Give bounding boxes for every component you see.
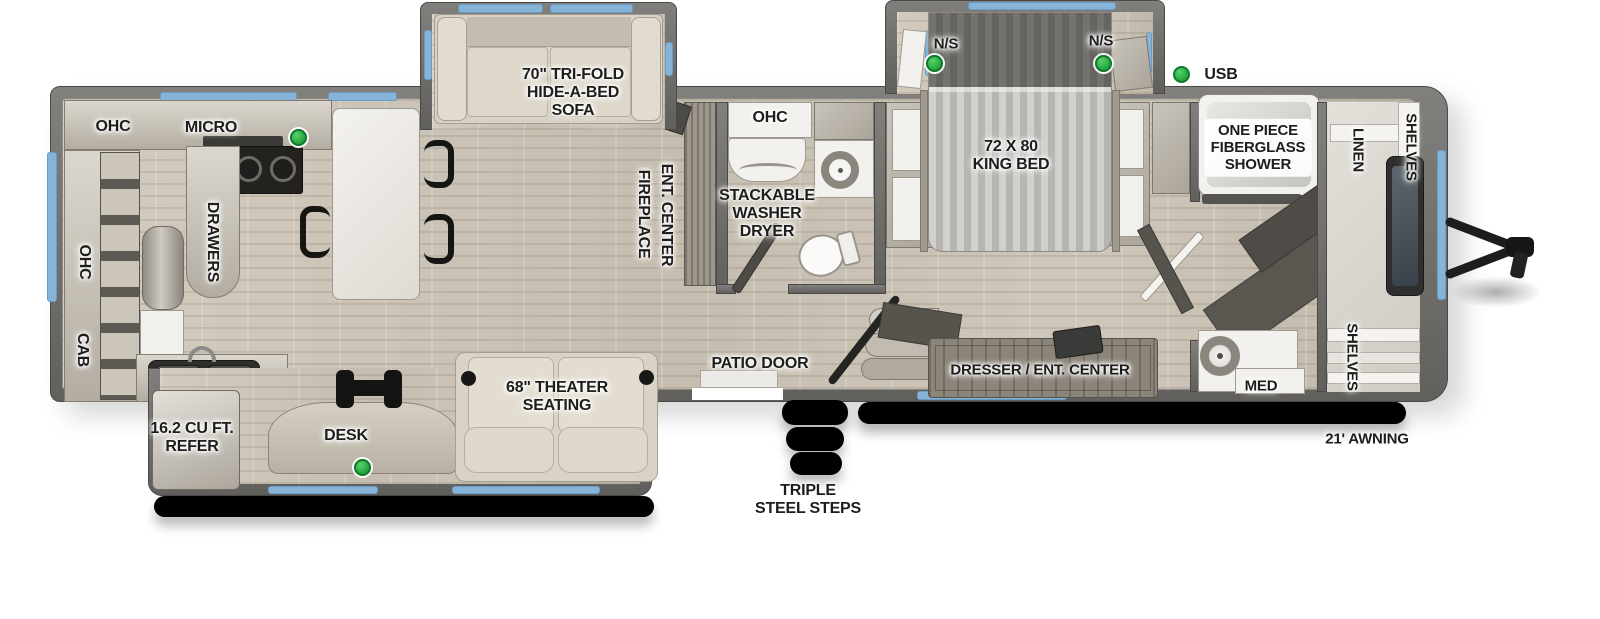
cupholder-icon bbox=[639, 370, 654, 385]
kitchen-cabinet-box bbox=[140, 310, 184, 360]
drain-icon bbox=[1217, 353, 1223, 359]
usb-indicator-icon bbox=[926, 55, 943, 72]
window-sofa-slide-2 bbox=[550, 4, 633, 13]
theater-seat bbox=[558, 427, 648, 473]
burner-icon bbox=[270, 156, 296, 182]
washer-door-icon bbox=[739, 163, 797, 177]
entry-step bbox=[782, 400, 848, 425]
sofa-back bbox=[467, 17, 631, 47]
label-shower-line1: ONE PIECE bbox=[1211, 123, 1306, 140]
label-sofa-line2: HIDE-A-BED bbox=[522, 84, 624, 102]
fireplace-ent-center-unit bbox=[684, 102, 716, 286]
label-fireplace: FIREPLACE bbox=[634, 170, 652, 259]
label-drawers: DRAWERS bbox=[203, 202, 221, 282]
usb-indicator-icon bbox=[354, 459, 371, 476]
label-theater: 68" THEATER SEATING bbox=[506, 379, 608, 415]
entry-step bbox=[786, 427, 844, 451]
label-sofa-line3: SOFA bbox=[522, 102, 624, 120]
entry-step bbox=[790, 452, 842, 475]
label-washer-line2: WASHER bbox=[719, 205, 815, 223]
label-bed-line2: KING BED bbox=[973, 156, 1050, 174]
rear-awning-bar bbox=[154, 496, 654, 517]
label-refer: 16.2 CU FT. REFER bbox=[150, 420, 233, 456]
kitchen-trash-bin bbox=[142, 226, 184, 310]
shelves-bottom-1 bbox=[1327, 328, 1420, 342]
bed-rail-left bbox=[920, 90, 928, 252]
label-shower-line3: SHOWER bbox=[1211, 156, 1306, 173]
usb-indicator-icon bbox=[1095, 55, 1112, 72]
label-washer-line1: STACKABLE bbox=[719, 187, 815, 205]
rv-floorplan: OHC MICRO DRAWERS OHC CAB 16.2 CU FT. RE… bbox=[0, 0, 1600, 619]
midbath-corner-cabinet bbox=[814, 102, 874, 140]
island-stool bbox=[300, 206, 330, 258]
nightstand-right bbox=[1109, 36, 1153, 92]
midbath-sink-icon bbox=[821, 151, 859, 189]
frontbath-sink-icon bbox=[1200, 336, 1240, 376]
bedroom-cabinet-strip bbox=[1152, 102, 1190, 194]
label-ohc-bath: OHC bbox=[753, 109, 788, 127]
label-theater-line1: 68" THEATER bbox=[506, 379, 608, 397]
label-shelves-top: SHELVES bbox=[1402, 113, 1419, 181]
label-washer-dryer: STACKABLE WASHER DRYER bbox=[719, 187, 815, 241]
label-steps-line2: STEEL STEPS bbox=[755, 500, 861, 518]
label-med: MED bbox=[1245, 379, 1278, 396]
label-ohc-kitchen: OHC bbox=[96, 118, 131, 136]
cupholder-icon bbox=[461, 371, 476, 386]
usb-legend-icon bbox=[1173, 66, 1190, 83]
label-linen: LINEN bbox=[1349, 128, 1366, 172]
window-sofa-slide-1 bbox=[458, 4, 543, 13]
theater-seat bbox=[464, 427, 554, 473]
hitch-shadow bbox=[1450, 276, 1542, 308]
label-refer-line1: 16.2 CU FT. bbox=[150, 420, 233, 438]
label-micro: MICRO bbox=[185, 119, 237, 137]
label-steps: TRIPLE STEEL STEPS bbox=[755, 482, 861, 518]
island-stool bbox=[424, 140, 454, 188]
theater-seating bbox=[455, 352, 658, 482]
label-usb-legend: USB bbox=[1204, 66, 1237, 84]
label-awning: 21' AWNING bbox=[1325, 432, 1409, 449]
sofa-armrest bbox=[437, 17, 467, 121]
label-ns-left: N/S bbox=[934, 37, 958, 54]
label-refer-line2: REFER bbox=[150, 438, 233, 456]
label-dresser: DRESSER / ENT. CENTER bbox=[950, 363, 1129, 380]
label-shelves-bottom: SHELVES bbox=[1343, 323, 1360, 391]
label-desk: DESK bbox=[324, 427, 368, 445]
island-stool bbox=[424, 214, 454, 264]
label-cab: CAB bbox=[73, 333, 91, 367]
window-front-wall bbox=[1437, 150, 1446, 300]
label-sofa: 70" TRI-FOLD HIDE-A-BED SOFA bbox=[522, 66, 624, 120]
label-sofa-line1: 70" TRI-FOLD bbox=[522, 66, 624, 84]
window-rear-slide-1 bbox=[268, 486, 378, 494]
label-shower: ONE PIECE FIBERGLASS SHOWER bbox=[1205, 119, 1312, 177]
window-sofa-slide-left bbox=[424, 30, 432, 80]
window-top-rear-2 bbox=[328, 92, 397, 101]
midbath-wall-bottom-b bbox=[788, 284, 886, 294]
label-ohc-wall: OHC bbox=[75, 245, 93, 280]
label-theater-line2: SEATING bbox=[506, 397, 608, 415]
cabinet-doors-row bbox=[100, 152, 140, 400]
window-rear-slide-2 bbox=[452, 486, 600, 494]
sofa-armrest bbox=[631, 17, 661, 121]
tv-screen-icon bbox=[1392, 166, 1418, 286]
window-sofa-slide-right bbox=[665, 42, 673, 76]
window-bed-slide-top bbox=[968, 2, 1116, 10]
label-bed-line1: 72 X 80 bbox=[973, 138, 1050, 156]
main-awning-bar bbox=[858, 402, 1406, 424]
label-ent-center: ENT. CENTER bbox=[657, 164, 675, 267]
label-ns-right: N/S bbox=[1089, 34, 1113, 51]
label-patio-door: PATIO DOOR bbox=[712, 355, 809, 373]
label-steps-line1: TRIPLE bbox=[755, 482, 861, 500]
label-shower-line2: FIBERGLASS bbox=[1211, 140, 1306, 157]
closet-divider-wall bbox=[1317, 102, 1327, 392]
chair-seat-icon bbox=[348, 380, 390, 396]
bed-fold-line bbox=[929, 87, 1111, 92]
window-rear-wall bbox=[47, 152, 57, 302]
shelves-bottom-2 bbox=[1327, 352, 1420, 364]
hitch-frame-bar bbox=[1444, 216, 1514, 250]
shelves-bottom-3 bbox=[1327, 372, 1420, 384]
washer-dryer-unit bbox=[728, 138, 806, 182]
usb-indicator-icon bbox=[290, 129, 307, 146]
label-king-bed: 72 X 80 KING BED bbox=[973, 138, 1050, 174]
hitch-frame-bar bbox=[1444, 245, 1514, 279]
shower-curb bbox=[1202, 194, 1302, 204]
desk-chair bbox=[336, 364, 404, 410]
midbath-wall-right bbox=[874, 102, 886, 294]
kitchen-island bbox=[332, 108, 420, 300]
drain-icon bbox=[838, 168, 843, 173]
bed-rail-right bbox=[1112, 90, 1120, 252]
label-washer-line3: DRYER bbox=[719, 223, 815, 241]
patio-door-opening bbox=[692, 388, 783, 400]
